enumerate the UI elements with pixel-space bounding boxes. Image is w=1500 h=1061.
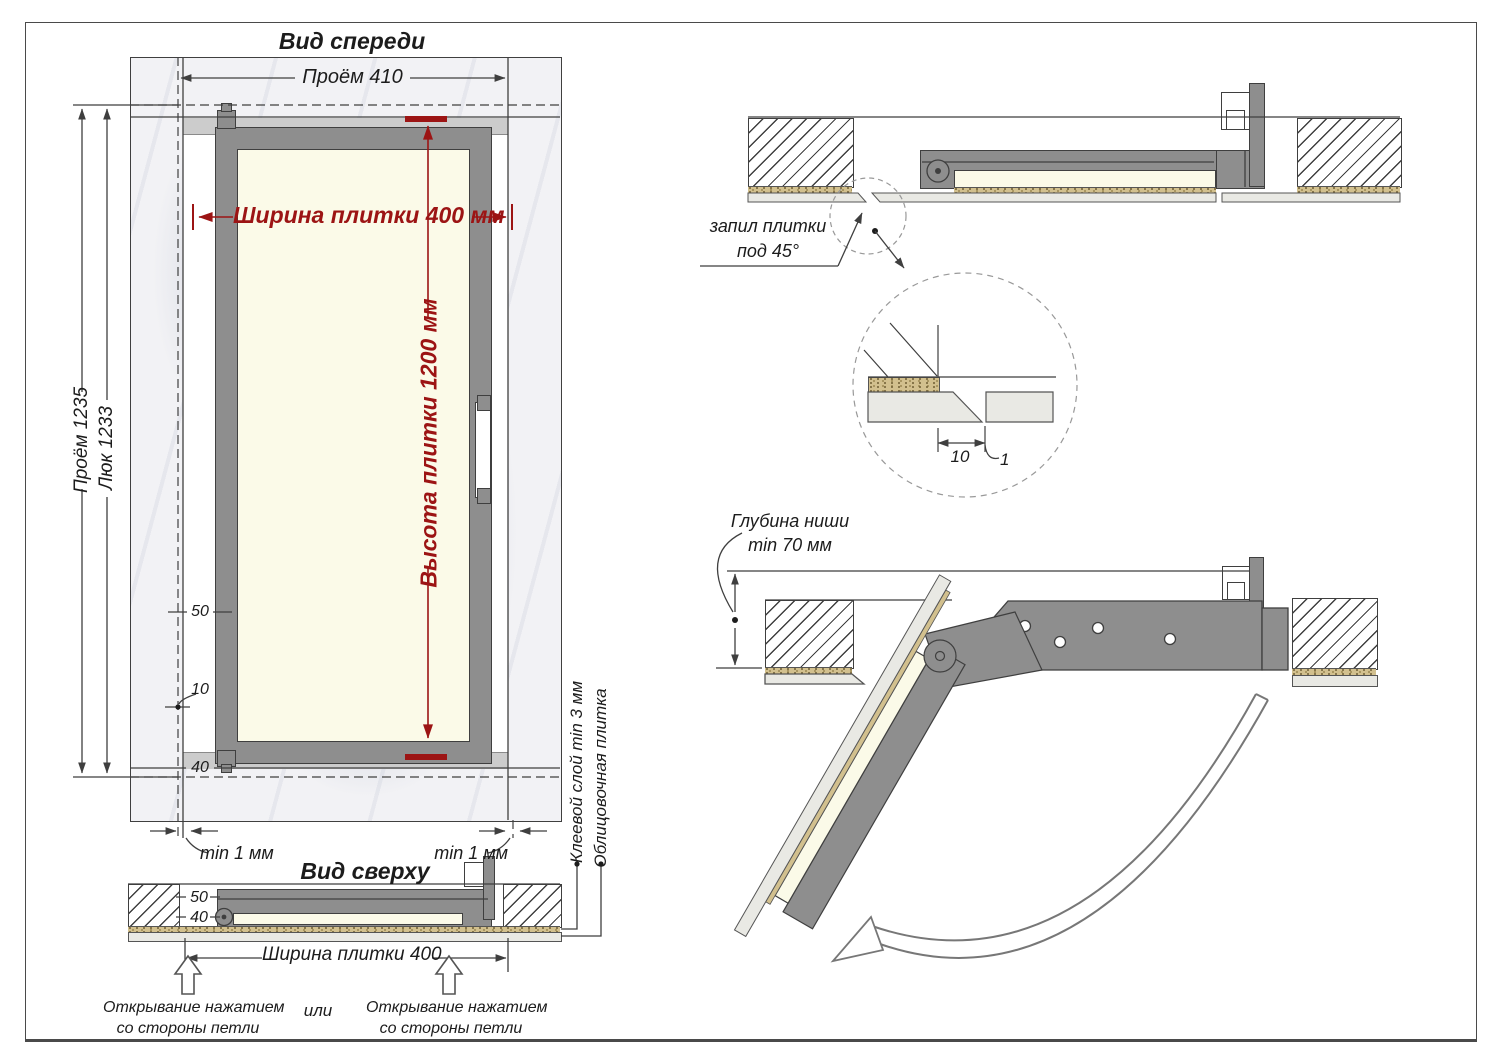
- door-handle-top-block: [477, 395, 491, 411]
- open-facing-tile-right: [1292, 675, 1378, 687]
- front-view-title: Вид спереди: [252, 28, 452, 55]
- closed-section-wall-right: [1297, 118, 1402, 188]
- cut-label-line1: запил плитки: [700, 216, 836, 237]
- detail-dim-1: 1: [1000, 450, 1009, 470]
- top-view-facing-tile: [128, 932, 562, 942]
- bottom-hinge-cap: [221, 764, 232, 773]
- open-hint-right-line2: со стороны петли: [366, 1020, 536, 1038]
- top-view-latch-plate: [483, 856, 495, 920]
- detail-dim-10: 10: [944, 447, 976, 467]
- top-view-title: Вид сверху: [265, 858, 465, 885]
- label-glue-layer: Клеевой слой min 3 мм: [567, 681, 587, 863]
- dim-tile-width: Ширина плитки 400 мм: [233, 202, 472, 229]
- closed-section-wall-left: [748, 118, 854, 188]
- top-view-door-tile: [233, 913, 463, 925]
- top-hinge-cap: [221, 103, 232, 112]
- dim-40: 40: [186, 759, 214, 777]
- open-hint-right-line1: Открывание нажатием: [366, 999, 536, 1017]
- closed-adhesive-right: [1297, 186, 1400, 195]
- door-handle: [475, 402, 491, 498]
- open-hint-left-line1: Открывание нажатием: [103, 999, 273, 1017]
- depth-label-line2: min 70 мм: [726, 535, 854, 556]
- closed-push-latch-inner: [1226, 110, 1245, 130]
- depth-label-line1: Глубина ниши: [726, 511, 854, 532]
- dim-opening-height: Проём 1235: [71, 387, 93, 493]
- top-hinge: [217, 110, 236, 129]
- open-push-latch-inner: [1227, 582, 1245, 600]
- top-view-wall-right: [503, 884, 562, 928]
- cut-label-line2: под 45°: [700, 241, 836, 262]
- drawing-sheet: Вид спереди Проём 410 Проём 1235 Люк 123…: [0, 0, 1500, 1061]
- dim-opening-width: Проём 410: [295, 66, 410, 89]
- closed-door-adhesive: [954, 187, 1216, 195]
- dim-hatch-height: Люк 1233: [96, 406, 118, 490]
- open-section-wall-left: [765, 600, 854, 669]
- open-latch-plate: [1249, 557, 1264, 624]
- label-facing-tile: Облицовочная плитка: [591, 688, 611, 867]
- dim-tile-height: Высота плитки 1200 мм: [416, 298, 443, 587]
- dim-10: 10: [186, 681, 214, 699]
- closed-latch-plate: [1249, 83, 1265, 187]
- top-view-dim-50: 50: [186, 889, 212, 907]
- or-label: или: [293, 1001, 343, 1021]
- top-view-push-latch: [464, 862, 485, 887]
- door-handle-bottom-block: [477, 488, 491, 504]
- closed-adhesive-left: [748, 186, 852, 195]
- top-view-dim-tile-width: Ширина плитки 400: [262, 944, 432, 966]
- top-view-wall-left: [128, 884, 180, 928]
- top-view-dim-40: 40: [186, 909, 212, 927]
- open-section-wall-right: [1292, 598, 1378, 670]
- dim-50: 50: [186, 603, 214, 621]
- open-adhesive-left: [765, 667, 852, 676]
- open-hint-left-line2: со стороны петли: [103, 1020, 273, 1038]
- dim-min-gap-left: min 1 мм: [200, 843, 274, 864]
- detail-adhesive: [868, 377, 940, 394]
